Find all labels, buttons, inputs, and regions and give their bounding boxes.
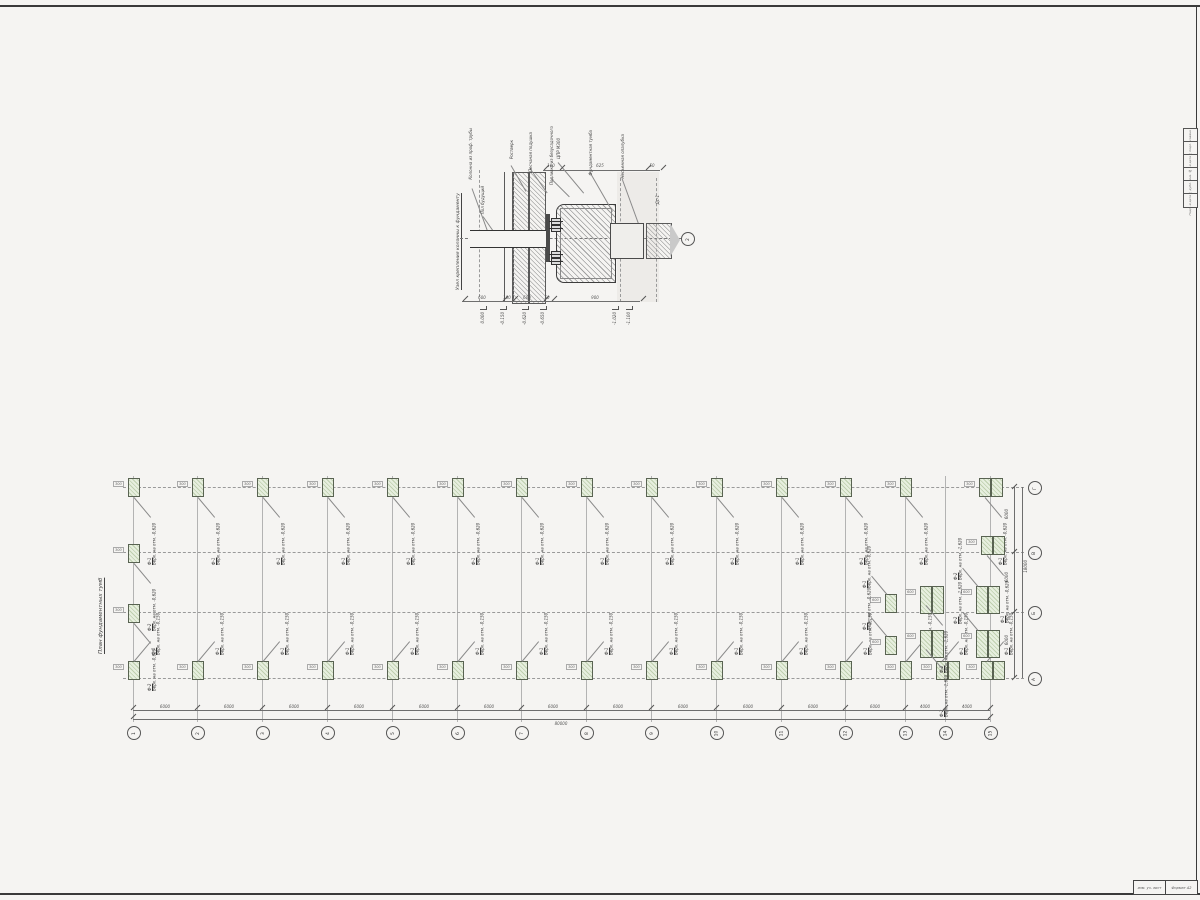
footing-mini-dim: 300 <box>696 664 707 670</box>
footing-callout: Ф-1 Верх. на отм. -0,620 <box>472 515 481 565</box>
footing-pad <box>646 478 658 497</box>
footing-mini-dim: 300 <box>966 539 977 545</box>
footing-pad <box>988 630 1000 658</box>
elevation-flag-icon <box>500 306 507 310</box>
footing-pad <box>776 661 788 680</box>
footing-pad <box>993 661 1005 680</box>
footing-mini-dim: 300 <box>437 664 448 670</box>
grid-bubble: Б <box>1028 606 1042 620</box>
dimension-text: 6000 <box>419 704 429 709</box>
footing-mini-dim: 300 <box>307 664 318 670</box>
footing-mini-dim: 600 <box>870 639 881 645</box>
footing-pad <box>516 661 528 680</box>
footing-pad <box>840 661 852 680</box>
grid-line <box>716 476 717 722</box>
grid-line <box>521 476 522 722</box>
grid-bubble: А <box>1028 672 1042 686</box>
footing-mini-dim: 300 <box>242 481 253 487</box>
title-block-stamp: изм. уч. лист Формат А2 <box>1133 880 1198 895</box>
footing-callout: Ф-1 Верх. на отм. -0,620 <box>731 515 740 565</box>
anchor-bolt <box>551 218 561 225</box>
dimension-text: 6000 <box>484 704 494 709</box>
grid-line <box>651 476 652 722</box>
dimension-text: 900 <box>591 295 599 300</box>
dimension-text: 6000 <box>224 704 234 709</box>
footing-callout: Ф-1 Верх. на отм. -0,620 <box>342 515 351 565</box>
footing-pad <box>128 544 140 563</box>
footing-pad <box>581 478 593 497</box>
footing-mini-dim: 300 <box>696 481 707 487</box>
detail-label: Подливка из безусадочного <box>549 126 554 185</box>
plan-total-dim: 80000 <box>555 721 568 726</box>
footing-callout: Ф-1 Верх. на отм. -0,620 <box>666 515 675 565</box>
grid-bubble: 1 <box>127 726 141 740</box>
footing-callout: Ф-1 Верх. на отм. -0,620 <box>796 515 805 565</box>
elevation-flag-icon <box>626 306 633 310</box>
footing-leader <box>782 641 799 662</box>
detail-label: Фундаментная тумба <box>588 130 593 175</box>
plan-bay-dimline <box>133 710 990 711</box>
grid-bubble: 3 <box>256 726 270 740</box>
footing-mini-dim: 300 <box>761 481 772 487</box>
footing-callout: Ф-1 Верх. на отм. -0,150 <box>735 605 744 655</box>
footing-pad <box>932 630 944 658</box>
footing-pad <box>711 478 723 497</box>
footing-mini-dim: 300 <box>825 481 836 487</box>
dimension-tick <box>661 165 667 171</box>
footing-mini-dim: 300 <box>113 547 124 553</box>
frame-strip-row: Подп. и дата <box>1183 193 1198 208</box>
grid-bubble: 6 <box>451 726 465 740</box>
grid-bubble: 5 <box>386 726 400 740</box>
grid-line <box>845 476 846 722</box>
detail-axis-bubble: 2 <box>681 232 695 246</box>
grid-line <box>905 476 906 722</box>
foundation-block-inner-line <box>560 208 612 279</box>
plan-total-dimline <box>133 719 990 720</box>
footing-mini-dim: 300 <box>113 607 124 613</box>
footing-callout: Ф-1 Верх. на отм. -0,620 <box>407 515 416 565</box>
footing-leader <box>652 641 669 662</box>
footing-callout: Ф-1 Верх. на отм. -0,150 <box>476 605 485 655</box>
footing-mini-dim: 300 <box>631 664 642 670</box>
footing-callout: Ф-1 Верх. на отм. -0,620 <box>277 515 286 565</box>
grid-bubble: 15 <box>984 726 998 740</box>
footing-pad <box>776 478 788 497</box>
footing-pad <box>646 661 658 680</box>
footing-leader <box>871 618 887 637</box>
footing-pad <box>976 586 988 614</box>
footing-callout: Ф-1 Верх. на отм. -0,150 <box>281 605 290 655</box>
dimension-text: 625 <box>596 163 604 168</box>
sheet-border-top <box>0 5 1200 7</box>
grid-bubble: 12 <box>839 726 853 740</box>
grid-bubble: Г <box>1028 481 1042 495</box>
footing-pad <box>981 661 993 680</box>
footing-pad <box>885 594 897 613</box>
footing-callout: Ф-2 Верх. на отм. -0,620 <box>148 581 157 631</box>
grid-bubble: 2 <box>191 726 205 740</box>
footing-callout: Ф-1 Верх. на отм. -0,620 <box>920 515 929 565</box>
footing-pad <box>387 478 399 497</box>
detail-label: Пол будущий <box>480 186 485 214</box>
plan-right-dimline <box>1014 487 1015 678</box>
footing-pad <box>988 586 1000 614</box>
detail-label: Несъемная опалубка <box>620 134 625 179</box>
stamp-cell-right: Формат А2 <box>1166 881 1197 894</box>
beam-break-arrow <box>670 223 680 257</box>
footing-pad <box>900 478 912 497</box>
footing-pad <box>840 478 852 497</box>
footing-callout: Ф-1 Верх. на отм. -0,150 <box>670 605 679 655</box>
footing-callout: Ф-1 Верх. на отм. -0,150 <box>216 605 225 655</box>
plan-right-total-dimline <box>1022 487 1023 678</box>
elevation-flag-icon <box>540 306 547 310</box>
footing-callout: Ф-2 Верх. на отм. -0,620 <box>148 641 157 691</box>
footing-mini-dim: 300 <box>885 664 896 670</box>
footing-mini-dim: 300 <box>177 481 188 487</box>
detail-label: Песчаная подушка <box>528 132 533 172</box>
grid-line <box>327 476 328 722</box>
footing-pad <box>711 661 723 680</box>
footing-mini-dim: 300 <box>966 664 977 670</box>
footing-mini-dim: 300 <box>113 481 124 487</box>
footing-leader <box>587 641 604 662</box>
detail-label: Дс-1 <box>655 195 660 204</box>
footing-pad <box>948 661 960 680</box>
footing-mini-dim: 300 <box>242 664 253 670</box>
footing-callout: Ф-1 Верх. на отм. -0,620 <box>863 580 872 630</box>
footing-leader <box>458 641 475 662</box>
footing-mini-dim: 300 <box>885 481 896 487</box>
dimension-text: 6000 <box>354 704 364 709</box>
footing-leader <box>871 576 887 595</box>
grid-line <box>262 476 263 722</box>
detail-label: ЦПР М300 <box>556 138 561 159</box>
footing-pad <box>322 478 334 497</box>
grid-bubble: 14 <box>939 726 953 740</box>
footing-mini-dim: 300 <box>566 664 577 670</box>
dimension-text: 6000 <box>1004 635 1009 645</box>
footing-mini-dim: 300 <box>307 481 318 487</box>
footing-pad <box>128 478 140 497</box>
dimension-text: 6000 <box>548 704 558 709</box>
footing-pad <box>322 661 334 680</box>
footing-mini-dim: 600 <box>905 589 916 595</box>
footing-mini-dim: 300 <box>113 664 124 670</box>
footing-leader <box>263 641 280 662</box>
footing-pad <box>991 478 1003 497</box>
dimension-text: 6000 <box>289 704 299 709</box>
footing-pad <box>387 661 399 680</box>
footing-mini-dim: 300 <box>501 481 512 487</box>
grid-bubble: 7 <box>515 726 529 740</box>
anchor-bolt <box>551 225 561 232</box>
footing-mini-dim: 600 <box>961 633 972 639</box>
anchor-bolt <box>551 258 561 265</box>
stamp-cell-left: изм. уч. лист <box>1134 881 1166 894</box>
footing-pad <box>257 478 269 497</box>
detail-label: Ростверк <box>509 140 514 159</box>
footing-callout: Ф-1 Верх. на отм. -0,150 <box>411 605 420 655</box>
dimension-text: 6000 <box>678 704 688 709</box>
footing-pad <box>981 536 993 555</box>
footing-callout: Ф-1 Верх. на отм. -0,620 <box>212 515 221 565</box>
beam-break-piece <box>646 223 672 259</box>
detail-bottom-dimline <box>462 301 640 302</box>
footing-pad <box>900 661 912 680</box>
footing-mini-dim: 300 <box>761 664 772 670</box>
footing-pad <box>452 478 464 497</box>
footing-pad <box>128 661 140 680</box>
footing-callout: Ф-2 Верх. на отм. -1,620 <box>954 530 963 580</box>
grid-line <box>392 476 393 722</box>
footing-callout: Ф-1 Верх. на отм. -0,150 <box>605 605 614 655</box>
elevation-flag-icon <box>480 306 487 310</box>
grid-bubble: 10 <box>710 726 724 740</box>
dimension-text: 4000 <box>920 704 930 709</box>
footing-pad <box>932 586 944 614</box>
footing-callout: Ф-1 Верх. на отм. -0,150 <box>346 605 355 655</box>
drawing-sheet: СогласованоИнв. № подл.Подп. и датаВзам.… <box>0 0 1200 900</box>
footing-pad <box>993 536 1005 555</box>
dimension-text: 600 <box>478 295 486 300</box>
footing-pad <box>128 604 140 623</box>
footing-leader <box>328 641 345 662</box>
steel-column <box>470 230 546 248</box>
footing-leader <box>522 641 539 662</box>
footing-leader <box>393 641 410 662</box>
footing-mini-dim: 600 <box>905 633 916 639</box>
footing-mini-dim: 300 <box>372 664 383 670</box>
footing-pad <box>257 661 269 680</box>
anchor-bolt <box>551 251 561 258</box>
dimension-text: 600 <box>523 295 531 300</box>
footing-callout: Ф-1 Верх. на отм. -0,150 <box>540 605 549 655</box>
footing-leader <box>198 641 215 662</box>
footing-mini-dim: 300 <box>566 481 577 487</box>
grid-line <box>586 476 587 722</box>
pier-block <box>610 223 644 259</box>
dimension-text: 6000 <box>613 704 623 709</box>
footing-mini-dim: 300 <box>825 664 836 670</box>
grid-bubble: 8 <box>580 726 594 740</box>
dimension-text: 6000 <box>743 704 753 709</box>
grid-bubble: 11 <box>775 726 789 740</box>
dimension-text: 6000 <box>1004 509 1009 519</box>
elevation-flag-icon <box>612 306 619 310</box>
footing-mini-dim: 300 <box>372 481 383 487</box>
footing-pad <box>192 478 204 497</box>
row-axis-line <box>123 552 1024 553</box>
footing-callout: Ф-1 Верх. на отм. -0,620 <box>536 515 545 565</box>
grid-line <box>133 476 134 722</box>
grid-bubble: 9 <box>645 726 659 740</box>
grid-bubble: В <box>1028 546 1042 560</box>
footing-pad <box>979 478 991 497</box>
footing-mini-dim: 300 <box>631 481 642 487</box>
footing-mini-dim: 300 <box>964 481 975 487</box>
sheet-border-bottom <box>0 893 1200 895</box>
footing-pad <box>516 478 528 497</box>
dimension-text: 6000 <box>160 704 170 709</box>
footing-callout: Ф-1 Верх. на отм. -0,620 <box>601 515 610 565</box>
footing-mini-dim: 300 <box>177 664 188 670</box>
footing-leader <box>962 568 978 587</box>
grid-line <box>781 476 782 722</box>
detail-title: Узел крепления колонны к фундаменту <box>456 170 461 290</box>
dimension-text: 6000 <box>870 704 880 709</box>
footing-mini-dim: 300 <box>921 664 932 670</box>
grid-line <box>197 476 198 722</box>
footing-pad <box>976 630 988 658</box>
grid-bubble: 13 <box>899 726 913 740</box>
footing-pad <box>885 636 897 655</box>
plan-right-total-dim: 18000 <box>1023 560 1028 573</box>
footing-callout: Ф-1 Верх. на отм. -0,620 <box>148 515 157 565</box>
footing-callout: Ф-2 Верх. на отм. -1,620 <box>954 574 963 624</box>
footing-mini-dim: 300 <box>437 481 448 487</box>
footing-pad <box>452 661 464 680</box>
grid-line <box>457 476 458 722</box>
footing-leader <box>717 641 734 662</box>
plan-title: План фундаментных тумб <box>99 558 104 654</box>
footing-leader <box>846 641 863 662</box>
elevation-flag-icon <box>522 306 529 310</box>
footing-callout: Ф-1 Верх. на отм. -0,150 <box>800 605 809 655</box>
grid-bubble: 4 <box>321 726 335 740</box>
dimension-text: 6000 <box>808 704 818 709</box>
footing-pad <box>581 661 593 680</box>
dimension-text: 6000 <box>1004 572 1009 582</box>
detail-label: Колонна из проф. трубы <box>468 128 473 180</box>
footing-pad <box>192 661 204 680</box>
footing-mini-dim: 300 <box>501 664 512 670</box>
dimension-text: 4000 <box>962 704 972 709</box>
